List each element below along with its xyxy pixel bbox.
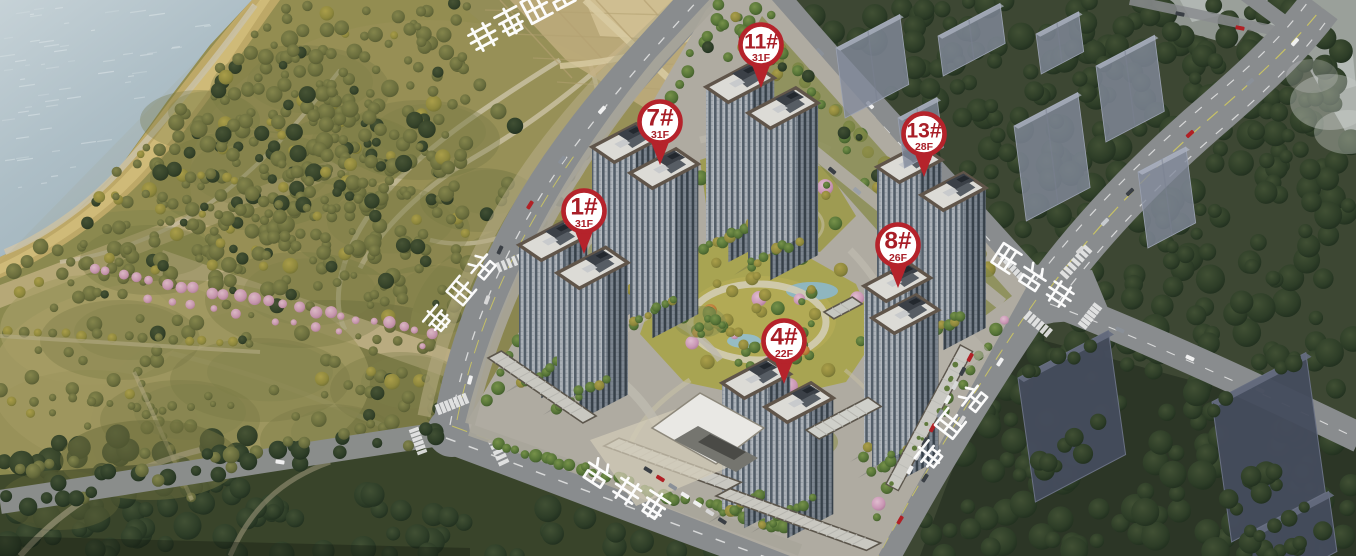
svg-text:31F: 31F [651, 129, 670, 141]
svg-text:1#: 1# [570, 194, 598, 221]
svg-text:31F: 31F [575, 218, 594, 230]
svg-text:11#: 11# [744, 31, 778, 54]
svg-text:26F: 26F [889, 252, 908, 264]
svg-text:8#: 8# [884, 228, 912, 255]
svg-text:28F: 28F [915, 141, 934, 153]
svg-text:13#: 13# [906, 120, 941, 143]
svg-text:4#: 4# [770, 324, 798, 351]
svg-text:7#: 7# [646, 105, 674, 132]
svg-text:22F: 22F [775, 348, 794, 360]
svg-text:31F: 31F [752, 52, 771, 64]
